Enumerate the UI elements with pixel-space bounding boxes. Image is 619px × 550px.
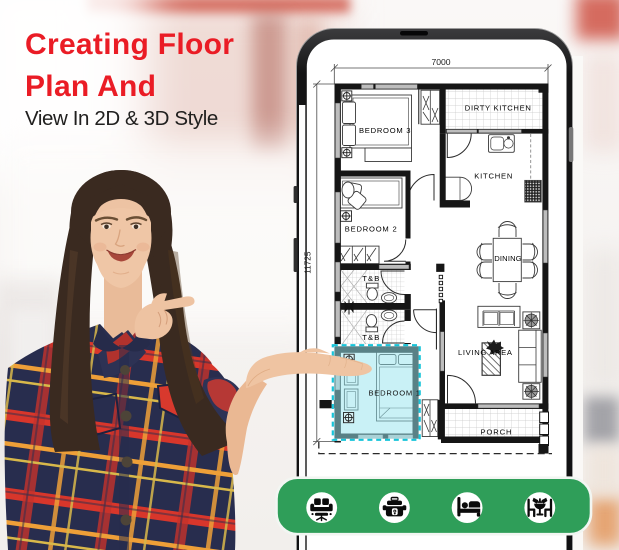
svg-text:BEDROOM 2: BEDROOM 2 — [345, 225, 397, 234]
svg-text:T&B: T&B — [362, 274, 379, 283]
svg-text:LIVING AREA: LIVING AREA — [458, 348, 513, 357]
svg-text:11725: 11725 — [303, 251, 312, 274]
svg-text:KITCHEN: KITCHEN — [474, 172, 512, 181]
svg-text:7000: 7000 — [431, 57, 450, 67]
svg-text:BEDROOM 1: BEDROOM 1 — [369, 388, 421, 397]
svg-text:T&B: T&B — [362, 333, 379, 342]
svg-text:DIRTY KITCHEN: DIRTY KITCHEN — [465, 104, 531, 113]
svg-text:BEDROOM 3: BEDROOM 3 — [359, 126, 411, 135]
svg-text:PORCH: PORCH — [481, 428, 512, 437]
svg-text:DINING: DINING — [494, 254, 522, 263]
